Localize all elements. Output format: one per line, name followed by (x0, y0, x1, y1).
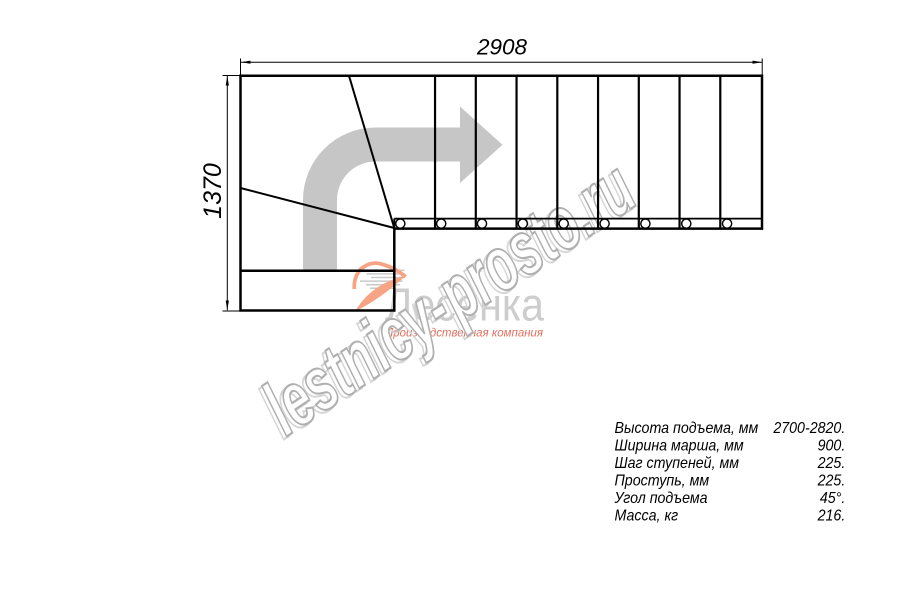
svg-text:216.: 216. (817, 507, 846, 525)
svg-text:900.: 900. (818, 437, 846, 455)
svg-text:Высота подъема, мм: Высота подъема, мм (615, 419, 759, 437)
svg-text:45°.: 45°. (820, 489, 845, 507)
svg-text:Шаг ступеней, мм: Шаг ступеней, мм (615, 454, 740, 472)
svg-text:2700-2820.: 2700-2820. (772, 419, 845, 437)
svg-text:225.: 225. (817, 454, 846, 472)
svg-text:1370: 1370 (199, 163, 227, 219)
svg-text:Угол подъема: Угол подъема (614, 489, 708, 507)
svg-text:225.: 225. (817, 472, 846, 490)
svg-text:Ширина марша, мм: Ширина марша, мм (615, 437, 745, 455)
svg-text:Проступь, мм: Проступь, мм (615, 472, 710, 490)
svg-text:lestnicy-: lestnicy- (247, 266, 466, 451)
svg-text:Масса, кг: Масса, кг (615, 507, 679, 525)
svg-text:2908: 2908 (476, 35, 528, 60)
